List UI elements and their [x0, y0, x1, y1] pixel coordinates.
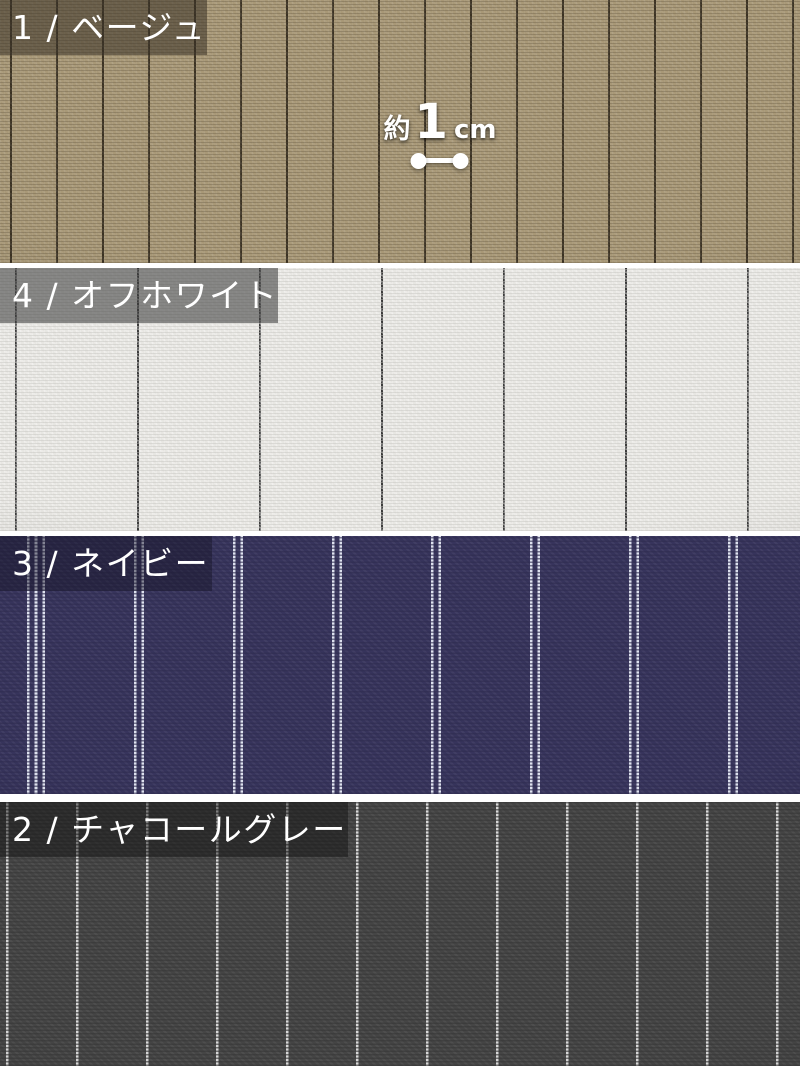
- fabric-comparison-sheet: 1 / ベージュ 約 1 cm 4 / オフホワイト 約 2.4 cm: [0, 0, 800, 1066]
- stripe-measurement: 約 1 cm: [384, 98, 497, 163]
- color-label: 2 / チャコールグレー: [0, 802, 348, 857]
- color-label: 1 / ベージュ: [0, 0, 207, 55]
- fabric-panel: 3 / ネイビー 約 2 cm: [0, 536, 800, 794]
- measurement-line: [418, 158, 462, 163]
- fabric-panel: 1 / ベージュ 約 1 cm: [0, 0, 800, 263]
- color-label: 3 / ネイビー: [0, 536, 212, 591]
- measurement-unit: cm: [454, 117, 497, 143]
- color-label-text: 4 / オフホワイト: [12, 279, 278, 312]
- fabric-panel: 4 / オフホワイト 約 2.4 cm: [0, 268, 800, 531]
- measurement-value: 1: [415, 98, 450, 146]
- color-label-text: 2 / チャコールグレー: [12, 813, 347, 846]
- color-label-text: 1 / ベージュ: [12, 11, 206, 44]
- measurement-prefix: 約: [384, 116, 411, 143]
- color-label: 4 / オフホワイト: [0, 268, 278, 323]
- color-label-text: 3 / ネイビー: [12, 547, 209, 580]
- measurement-text: 約 1 cm: [384, 98, 497, 146]
- fabric-panel: 2 / チャコールグレー 約 1.4 cm: [0, 802, 800, 1066]
